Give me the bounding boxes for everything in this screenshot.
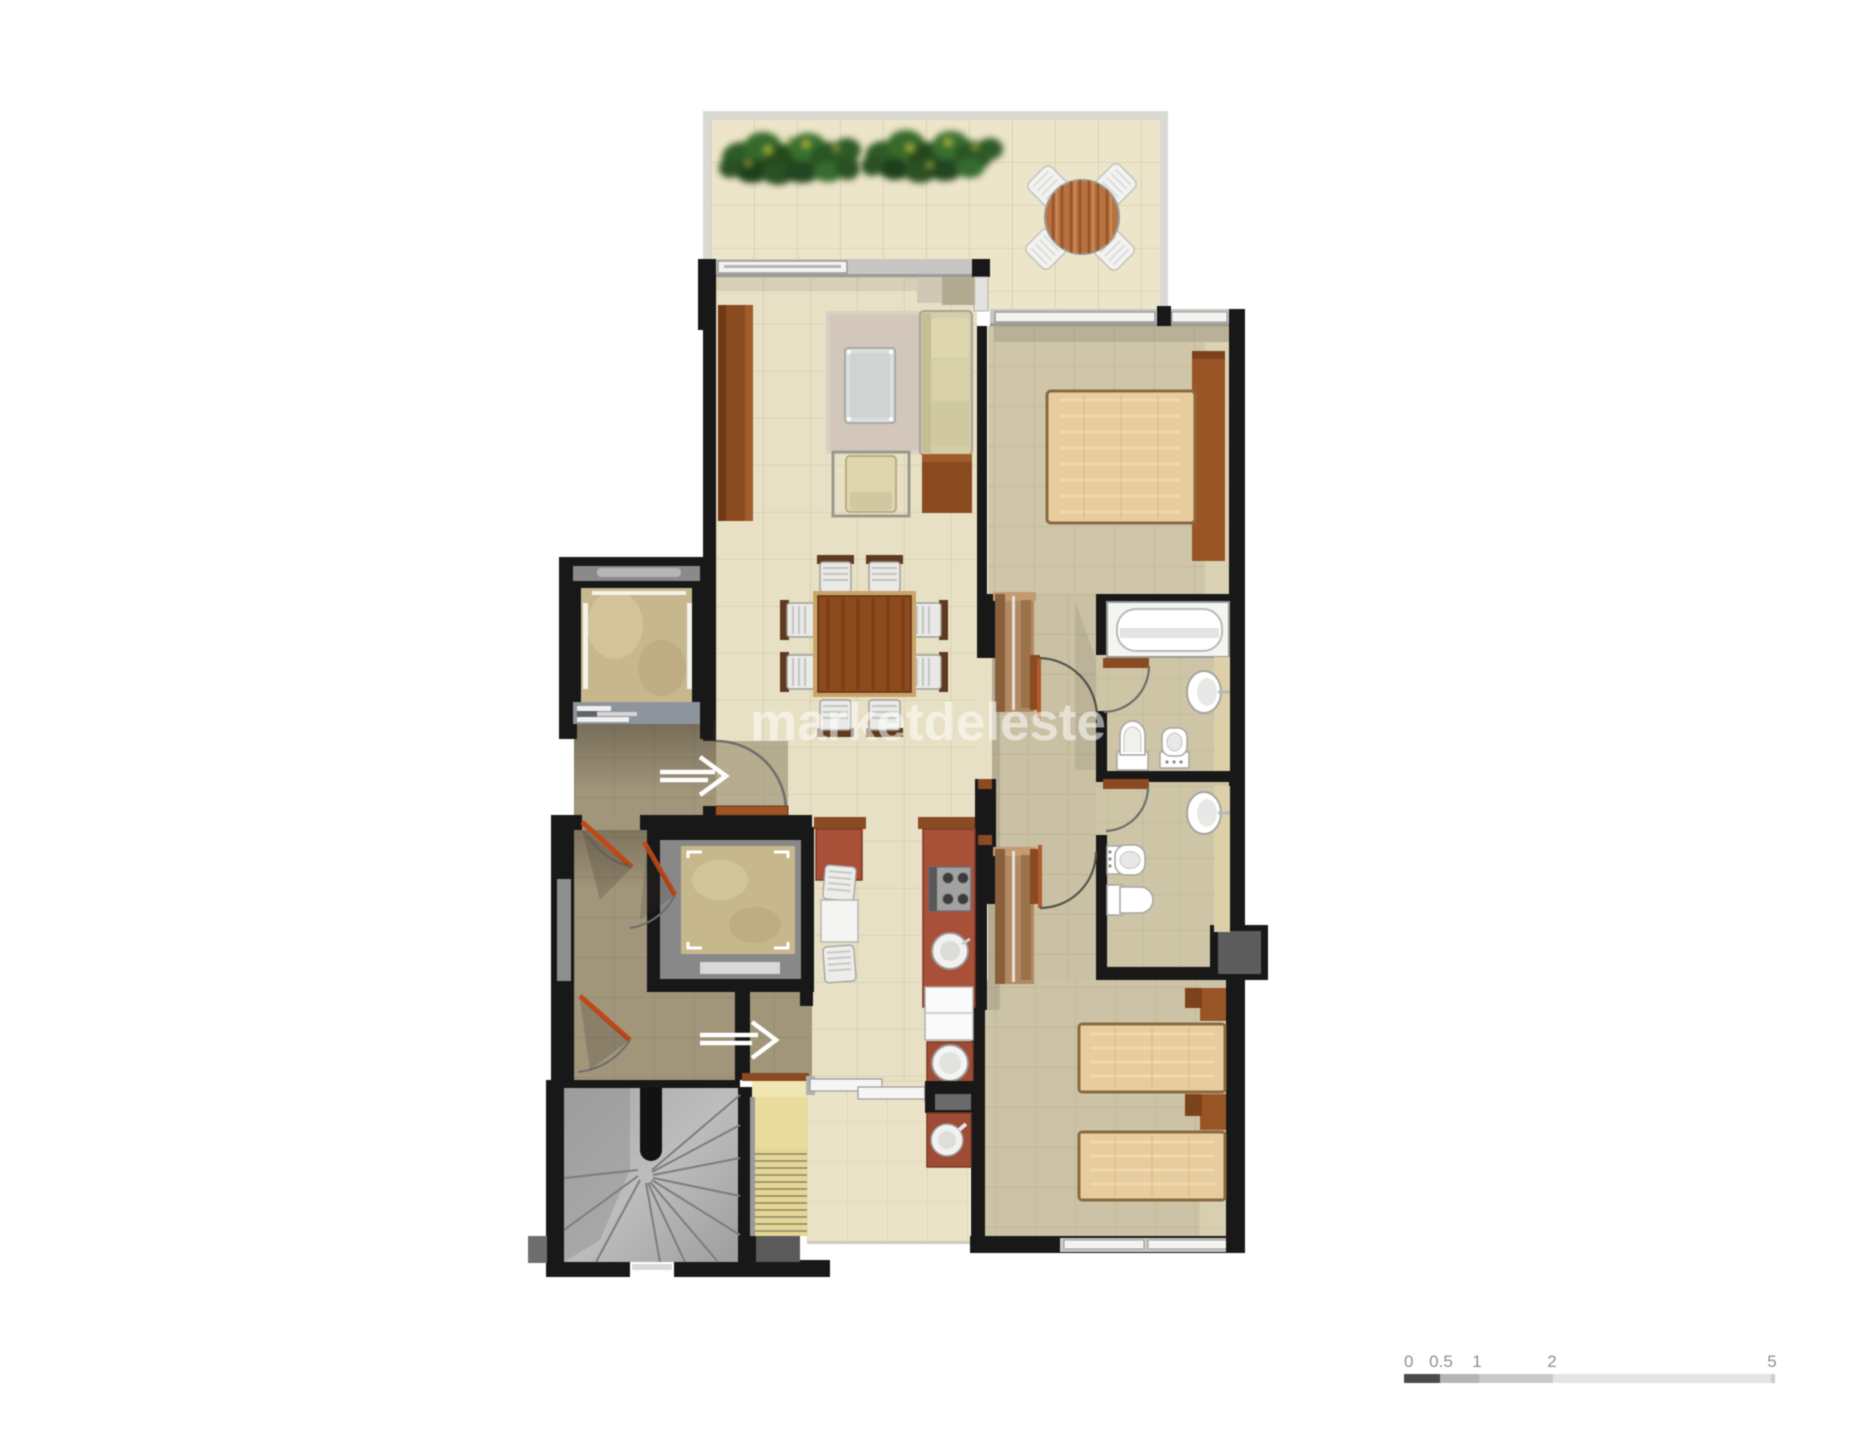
svg-text:2: 2 bbox=[1547, 1352, 1556, 1371]
svg-text:5: 5 bbox=[1767, 1352, 1776, 1371]
svg-text:0: 0 bbox=[1404, 1352, 1413, 1371]
svg-text:1: 1 bbox=[1472, 1352, 1481, 1371]
svg-text:0.5: 0.5 bbox=[1429, 1352, 1453, 1371]
svg-text:marketdeleste: marketdeleste bbox=[750, 693, 1106, 752]
